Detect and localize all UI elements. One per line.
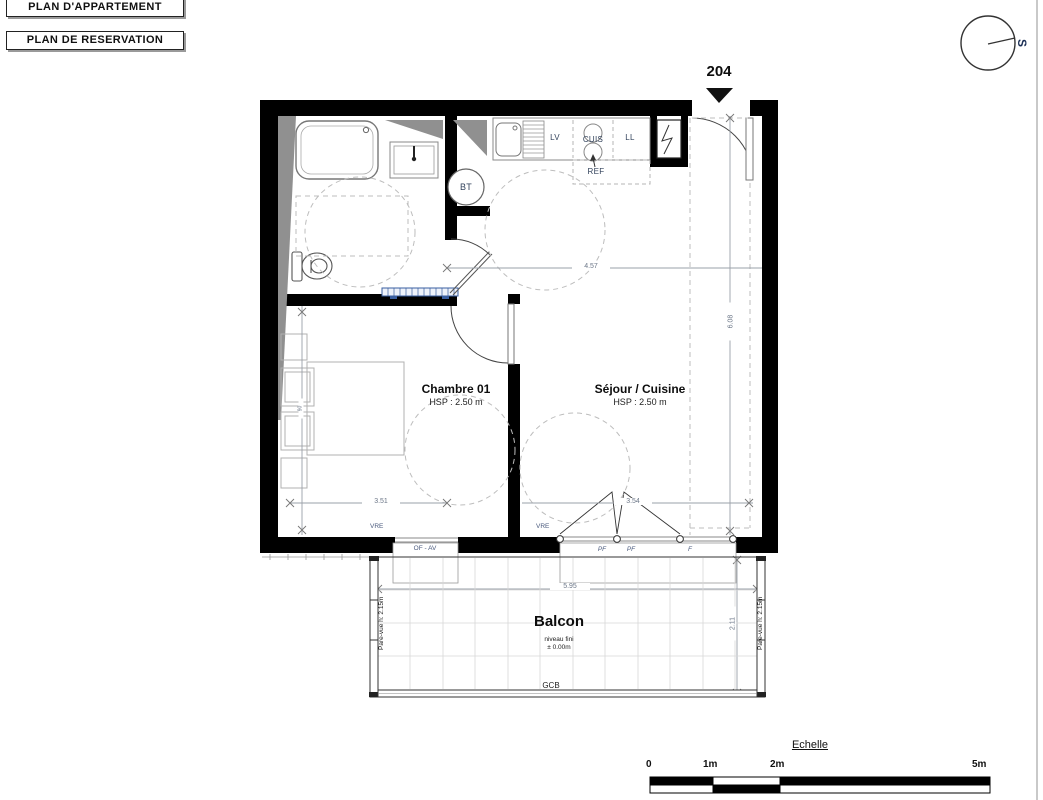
dim-balcon-width: 5.95 [550,583,590,590]
unit-number: 204 [697,64,741,79]
label-of-av: OF - AV [396,546,454,553]
room-name-sejour: Séjour / Cuisine [582,383,698,395]
doors [450,118,753,534]
bedroom-door-icon [451,304,514,364]
dim-chambre-width: 3.51 [362,498,400,505]
floor-plan-sheet: PLAN D'APPARTEMENT PLAN DE RESERVATION S… [0,0,1043,800]
plan-appartement-box: PLAN D'APPARTEMENT [6,0,184,17]
floor-plan-canvas [0,0,1043,800]
dashed-guides [296,118,750,535]
dim-sejour-width: 3.54 [614,498,652,505]
balcon-floor-label: GCB [534,682,568,690]
room-name-balcon: Balcon [520,614,598,629]
page-edge-divider [1036,0,1038,800]
facade-line [262,554,372,560]
label-f: F [680,547,700,554]
dim-balcon-depth: 2.11 [730,607,737,641]
window-pf-pf-f [557,536,737,583]
drainer-icon [523,121,544,158]
scale-bar-graphic [650,777,990,793]
dim-entry-width: 4.57 [572,263,610,270]
compass-south-label: S [1016,39,1028,47]
label-vre-right: VRE [536,524,549,531]
bed-icon [307,362,404,455]
plan-reservation-box: PLAN DE RESERVATION [6,31,184,50]
dim-sejour-depth: 6.08 [728,303,735,341]
scale-tick-0: 0 [646,760,652,770]
room-hsp-chambre: HSP : 2.50 m [400,398,512,407]
balcon-level-note-2: ± 0.00m [520,645,598,652]
windows [393,536,736,583]
bathroom-fixtures [292,121,458,299]
label-water-heater: BT [452,183,480,192]
bathroom-door-icon [450,239,492,295]
label-washing-machine: LL [618,134,642,142]
bathtub-faucet-icon [363,127,368,132]
scale-tick-2m: 2m [770,760,784,770]
label-vre-left: VRE [370,524,383,531]
scale-tick-5m: 5m [972,760,986,770]
label-pf-2: PF [621,547,641,554]
scale-title: Echelle [780,740,840,751]
label-pf-1: PF [592,547,612,554]
room-hsp-sejour: HSP : 2.50 m [582,398,698,407]
balcon-level-note-1: niveau fini [520,637,598,644]
entry-door-icon [692,118,753,180]
balcony-rail [378,690,757,697]
label-fridge: REF [582,168,610,176]
electrical-panel-icon [657,120,681,158]
washbasin-icon [390,142,438,178]
pare-vue-label-right: Pare-vue h: 2.15m [758,578,765,668]
room-name-chambre: Chambre 01 [400,383,512,395]
scale-tick-1m: 1m [703,760,717,770]
pare-vue-label-left: Pare-vue h: 2.15m [379,578,386,668]
entrance-marker-icon [706,88,733,103]
label-dishwasher: LV [543,134,567,142]
compass-icon [961,16,1015,70]
dim-bed-width: 90 [299,399,304,419]
label-cooktop: CUIS [578,136,608,144]
